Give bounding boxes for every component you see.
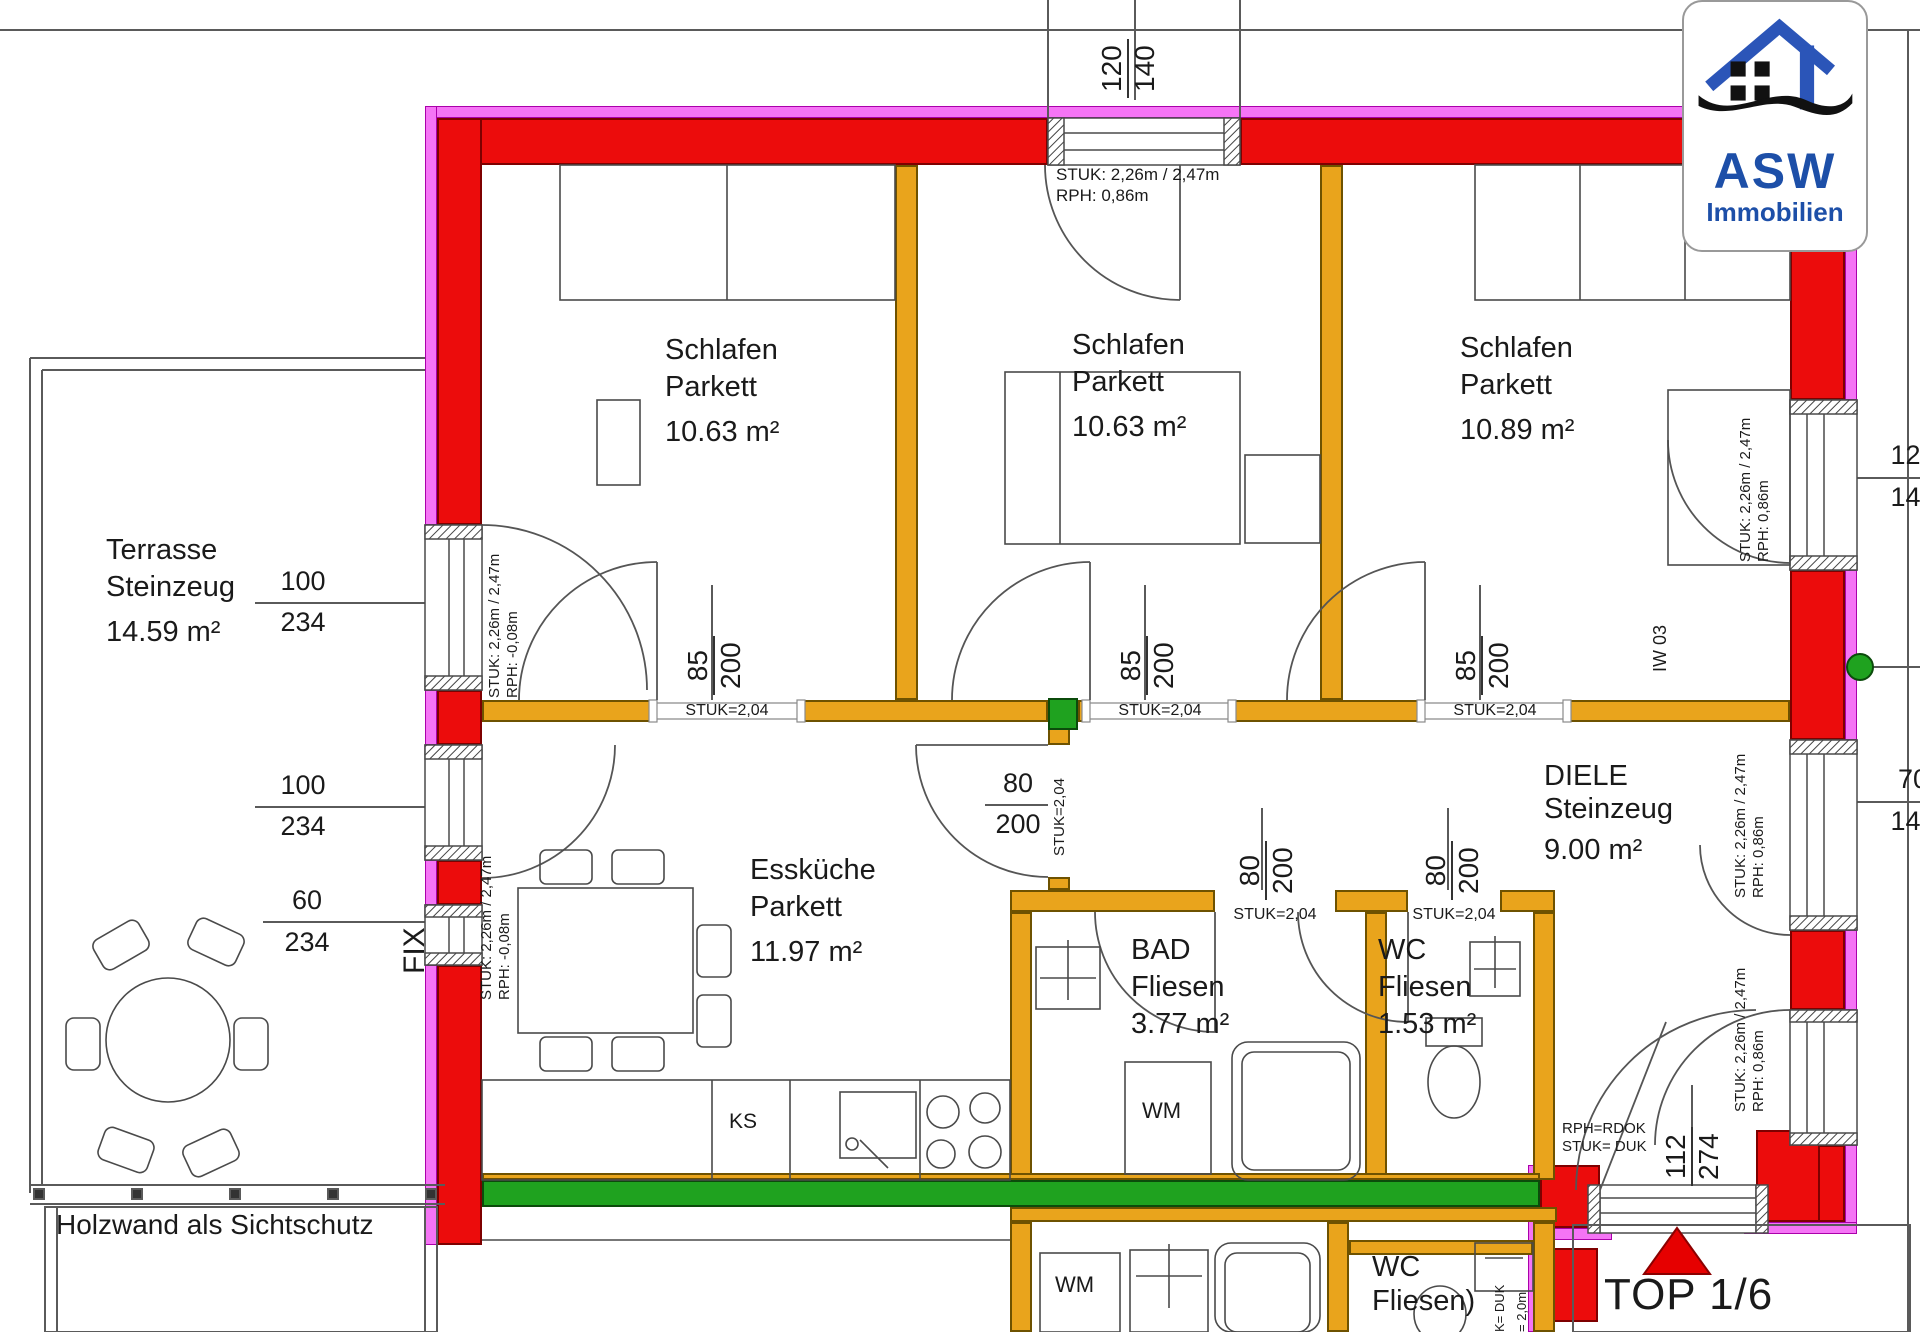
rph-line: RPH=RDOK [1562,1120,1647,1138]
room-floor: Parkett [1072,364,1186,401]
dim-door-s2: 85 200 [1115,636,1179,695]
fix-label: FIX [398,927,432,974]
kitchen-table-set [518,850,731,1071]
wm-label-lower: WM [1055,1272,1094,1298]
dim-right-mid-h: 140 [1878,806,1920,837]
room-floor: Fliesen [1131,969,1229,1006]
toilet [1428,1046,1480,1118]
window-terrace-door-1 [425,525,482,690]
house-wave-icon [1695,8,1855,138]
rph-line: RPH: -0,08m [504,554,522,698]
dim-num: 85 [682,636,713,695]
dim-kitchen-door-w: 80 [988,768,1048,799]
lintel-s2: STUK=2,04 [1095,702,1225,720]
dim-terrace-door-1-w: 100 [258,566,348,597]
dim-kitchen-door-h: 200 [988,809,1048,840]
stuk-annotation-right-top: STUK: 2,26m / 2,47m RPH: 0,86m [1737,418,1773,562]
room-label-wc-lower: WC Fliesen) [1372,1250,1475,1318]
stuk-line: STUK: 2,26m / 2,47m [486,554,504,698]
dim-den: 274 [1691,1127,1724,1186]
room-area: 10.63 m² [1072,409,1186,446]
company-logo: ASW Immobilien [1682,0,1868,252]
dim-door-wc: 80 200 [1420,841,1484,900]
room-label-bad: BAD Fliesen 3.77 m² [1131,932,1229,1043]
dim-right-top-w: 120 [1878,440,1920,471]
dim-den: 200 [713,636,746,695]
stuk-annotation-right-mid: STUK: 2,26m / 2,47m RPH: 0,86m [1732,754,1768,898]
room-area: 14.59 m² [106,614,235,651]
holzwand-label: Holzwand als Sichtschutz [56,1209,373,1241]
wm-label-bad: WM [1142,1098,1181,1124]
room-name: DIELE [1544,760,1673,793]
dim-entry-door: 112 274 [1660,1127,1724,1186]
room-area: 9.00 m² [1544,834,1673,867]
dim-den: 200 [1451,841,1484,900]
dim-den: 200 [1481,636,1514,695]
stuk-annotation-terrace-door-1: STUK: 2,26m / 2,47m RPH: -0,08m [486,554,522,698]
lintel-s3: STUK=2,04 [1430,702,1560,720]
room-floor: Fliesen) [1372,1284,1475,1318]
stuk-annotation-right-low: STUK: 2,26m / 2,47m RPH: 0,86m [1732,968,1768,1112]
room-name: Schlafen [1460,330,1574,367]
dim-top-window: 120 140 [1096,39,1160,98]
lintel-wc: STUK=2,04 [1394,906,1514,924]
dim-num: 85 [1115,636,1146,695]
dim-door-s3: 85 200 [1450,636,1514,695]
room-floor: Fliesen [1378,969,1476,1006]
dim-num: 85 [1450,636,1481,695]
window-top [1048,118,1240,165]
terrace-table-set [66,916,268,1180]
unit-triangle-icon [1644,1228,1710,1274]
stuk-annotation-terrace-door-2: STUK: 2,26m / 2,47m RPH: -0,08m [478,856,514,1000]
room-floor: Parkett [1460,367,1574,404]
rph-line: RPH: 0,86m [1755,418,1773,562]
room-name: WC [1372,1250,1475,1284]
entry-rph-annotation: RPH=RDOK STUK= DUK [1562,1120,1647,1156]
door-arc-schlafen3 [1287,562,1425,700]
stuk-line: STUK: 2,26m / 2,47m [478,856,496,1000]
lintel-s1: STUK=2,04 [662,702,792,720]
dim-door-bad: 80 200 [1234,841,1298,900]
stuk-annotation-top: STUK: 2,26m / 2,47m RPH: 0,86m [1056,164,1219,206]
dim-terrace-door-2-h: 234 [258,811,348,842]
dim-terrace-door-2-w: 100 [258,770,348,801]
terrace-outline [30,358,445,1332]
window-right-top [1790,400,1857,570]
room-floor: Steinzeug [106,569,235,606]
rph-line: RPH: 0,86m [1056,185,1219,206]
stuk-line: STUK: 2,26m / 2,47m [1056,164,1219,185]
room-label-schlafen-3: Schlafen Parkett 10.89 m² [1460,330,1574,449]
room-name: WC [1378,932,1476,969]
logo-brand-text: ASW [1684,145,1866,197]
stuk-line: STUK= DUK [1562,1138,1647,1156]
room-floor: Parkett [750,889,876,926]
room-label-schlafen-1: Schlafen Parkett 10.63 m² [665,332,779,451]
lintel-kitchen: STUK=2,04 [1051,778,1068,856]
room-label-esskueche: Essküche Parkett 11.97 m² [750,852,876,971]
m20-label: = 2,0m [1514,1292,1529,1332]
stuk-line: STUK: 2,26m / 2,47m [1732,754,1750,898]
window-right-mid [1790,740,1857,930]
stove-burners [927,1093,1001,1168]
unit-label: TOP 1/6 [1604,1270,1773,1320]
room-area: 11.97 m² [750,934,876,971]
fridge-label: KS [729,1110,757,1134]
green-marker-circle [1847,654,1873,680]
window-fix [425,905,482,965]
door-arc-diele-b [1655,1010,1790,1145]
room-label-terrasse: Terrasse Steinzeug 14.59 m² [106,532,235,651]
k-duk-label: K= DUK [1492,1285,1507,1332]
stuk-line: STUK: 2,26m / 2,47m [1737,418,1755,562]
dim-num: 120 [1096,39,1127,98]
kitchen-sink [840,1092,916,1158]
dim-fix-h: 234 [262,927,352,958]
window-terrace-door-2 [425,745,482,860]
bathtub [1232,1042,1360,1180]
room-floor: Parkett [665,369,779,406]
room-name: Schlafen [665,332,779,369]
room-label-schlafen-2: Schlafen Parkett 10.63 m² [1072,327,1186,446]
dim-num: 80 [1234,841,1265,900]
room-name: Schlafen [1072,327,1186,364]
iw03-label: IW 03 [1650,625,1671,672]
room-floor: Steinzeug [1544,793,1673,826]
door-arc-schlafen2 [952,562,1090,700]
window-right-low [1790,1010,1857,1145]
rph-line: RPH: -0,08m [496,856,514,1000]
dim-den: 140 [1127,39,1160,98]
dim-num: 80 [1420,841,1451,900]
rph-line: RPH: 0,86m [1750,968,1768,1112]
dim-door-s1: 85 200 [682,636,746,695]
room-area: 10.89 m² [1460,412,1574,449]
dim-right-top-h: 140 [1878,482,1920,513]
dim-right-mid-w: 70 [1878,764,1920,795]
dim-den: 200 [1265,841,1298,900]
dim-fix-w: 60 [262,885,352,916]
room-area: 3.77 m² [1131,1006,1229,1043]
logo-subtitle-text: Immobilien [1684,197,1866,227]
room-name: Essküche [750,852,876,889]
room-area: 10.63 m² [665,414,779,451]
room-name: Terrasse [106,532,235,569]
lintel-bad: STUK=2,04 [1215,906,1335,924]
room-area: 1.53 m² [1378,1006,1476,1043]
dim-den: 200 [1146,636,1179,695]
room-label-wc: WC Fliesen 1.53 m² [1378,932,1476,1043]
dim-num: 112 [1660,1127,1691,1186]
room-name: BAD [1131,932,1229,969]
stuk-line: STUK: 2,26m / 2,47m [1732,968,1750,1112]
rph-line: RPH: 0,86m [1750,754,1768,898]
floorplan-canvas: Schlafen Parkett 10.63 m² Schlafen Parke… [0,0,1920,1332]
room-label-diele: DIELE Steinzeug 9.00 m² [1544,760,1673,867]
dim-terrace-door-1-h: 234 [258,607,348,638]
